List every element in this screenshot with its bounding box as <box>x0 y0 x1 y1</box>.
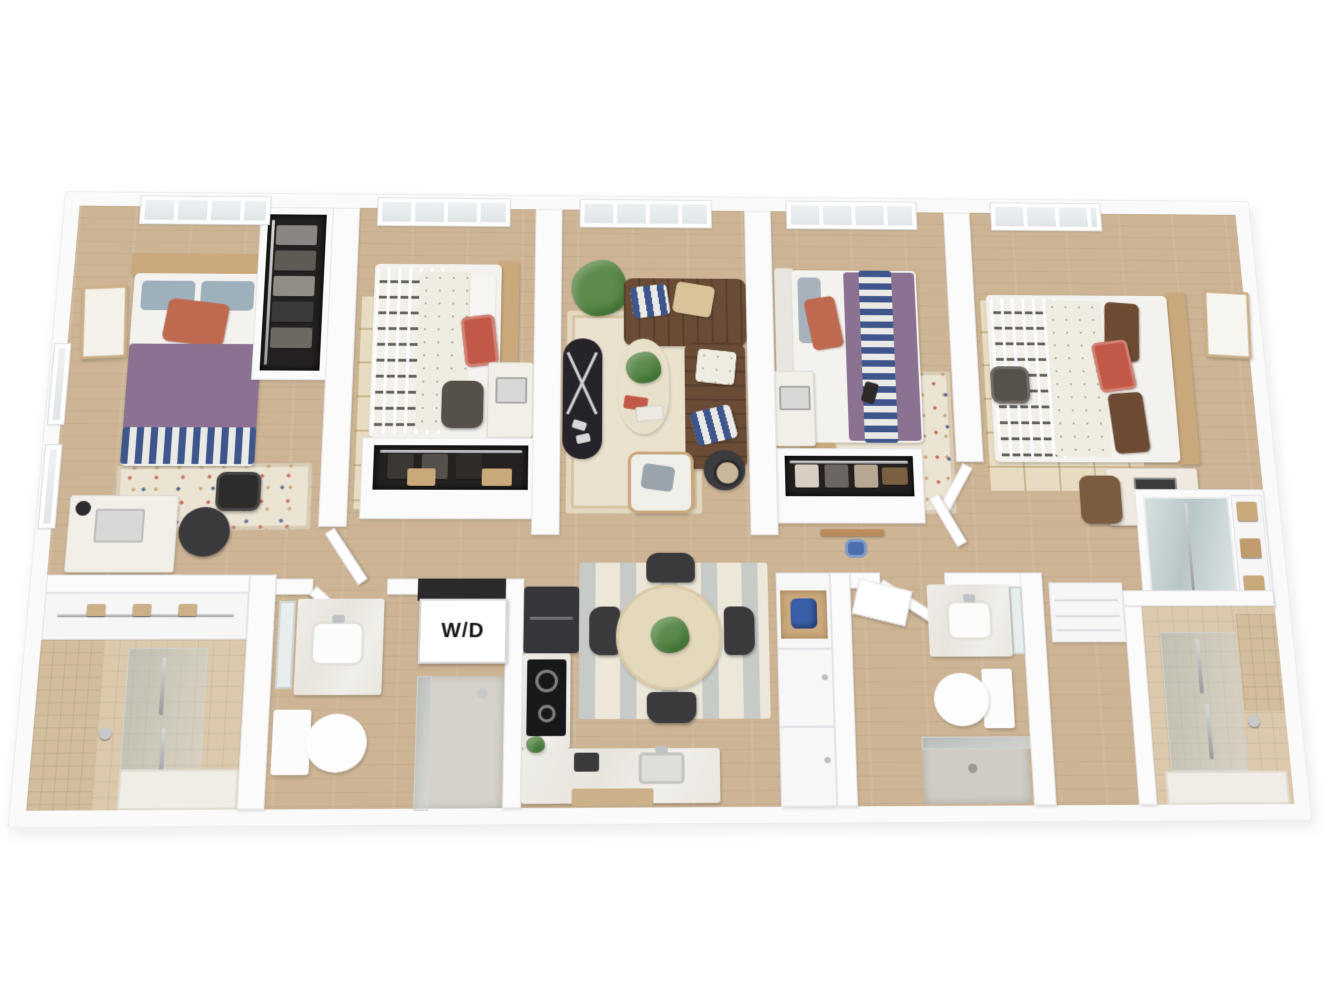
door-handle <box>1204 704 1213 760</box>
dining-chair <box>723 606 754 655</box>
cabinet-seam <box>780 726 834 728</box>
bedroom1-striped-blanket <box>120 427 256 464</box>
garment-rack-item <box>881 467 907 484</box>
wall <box>275 579 313 595</box>
window <box>579 199 711 228</box>
bedroom3-closet <box>784 456 914 497</box>
tile-wall <box>26 640 104 811</box>
hanging-clothes <box>269 327 312 348</box>
wall <box>1122 590 1274 606</box>
sofa-pillow-striped <box>629 283 670 318</box>
desk-chair <box>1078 476 1123 524</box>
storage-box <box>1235 502 1257 521</box>
page: W/D <box>0 0 1333 1000</box>
desk-chair <box>440 381 483 429</box>
stand-mixer <box>790 598 817 628</box>
hanger <box>132 604 152 616</box>
dining-chair <box>646 692 696 723</box>
sink-basin <box>945 600 993 640</box>
shelf-line <box>1055 615 1119 617</box>
window-pane <box>144 200 266 221</box>
dining-chair <box>646 553 695 583</box>
unit-interior: W/D <box>26 206 1294 811</box>
tub-ledge <box>116 769 238 810</box>
helmet-on-hook <box>844 539 867 558</box>
coat-rack <box>820 529 884 536</box>
window-pane <box>790 205 912 225</box>
tile-wall <box>1235 614 1284 711</box>
bedroom3-striped-runner <box>858 271 898 443</box>
magazine <box>635 405 664 423</box>
kitchen-sink <box>638 752 684 784</box>
cabinet-handle <box>821 674 827 680</box>
tv-media-unit <box>562 338 602 459</box>
shower-glass-panel <box>921 736 1030 749</box>
laptop <box>495 377 527 404</box>
wall-art-frame <box>80 285 128 360</box>
decor-item <box>575 433 590 444</box>
bedroom2-accent-pillow <box>460 314 499 367</box>
storage-box <box>481 468 511 485</box>
washer-dryer-unit[interactable]: W/D <box>417 599 507 664</box>
burner <box>535 670 558 693</box>
laptop <box>93 509 145 543</box>
open-shelf <box>779 590 827 638</box>
wall <box>531 209 562 535</box>
backpack <box>989 366 1030 403</box>
door-divider <box>1184 503 1195 597</box>
wall <box>45 575 250 593</box>
wall-art-frame <box>1203 290 1252 360</box>
window <box>785 201 917 230</box>
wood-bar-panel <box>571 788 653 805</box>
faucet <box>655 746 668 754</box>
tub-glass-doors <box>1159 632 1248 771</box>
door-handle <box>1195 639 1204 694</box>
door-handle <box>158 657 166 715</box>
floor-plan: W/D <box>7 191 1312 828</box>
faucet <box>332 615 345 623</box>
washer-dryer-niche <box>417 579 506 601</box>
bedroom2-closet <box>372 445 528 490</box>
linen-shelves <box>1048 582 1126 642</box>
shower-drain <box>967 764 977 773</box>
hanging-clothes <box>271 302 314 323</box>
window-pane <box>52 348 65 420</box>
laptop <box>778 386 810 411</box>
window <box>989 202 1102 231</box>
closet-rod <box>379 450 521 453</box>
window-pane <box>994 207 1097 227</box>
burner <box>537 705 555 723</box>
hanging-clothes <box>794 464 818 487</box>
tub-ledge <box>1164 771 1289 805</box>
hanging-clothes <box>455 454 482 479</box>
sofa-pillow-pattern <box>694 348 736 385</box>
shower-head <box>476 688 487 698</box>
window-pane <box>584 203 707 223</box>
linen-closet <box>41 593 249 640</box>
cabinet-seam <box>778 648 831 650</box>
potted-plant <box>571 260 628 317</box>
faucet <box>963 594 975 602</box>
coffee-maker <box>573 753 598 772</box>
decor-item <box>571 419 587 431</box>
window <box>138 195 271 225</box>
wall <box>386 579 419 595</box>
washer-dryer-label: W/D <box>441 619 485 642</box>
bedroom1-accent-pillow <box>161 298 230 348</box>
storage-box <box>406 468 435 486</box>
hanger <box>86 604 106 616</box>
bedroom1-closet <box>259 214 326 370</box>
mirrored-sliding-doors <box>1142 497 1238 604</box>
refrigerator <box>523 587 579 654</box>
table-plant <box>625 352 660 384</box>
shelf-line <box>1056 629 1120 631</box>
hanging-clothes <box>853 465 878 488</box>
table-plant <box>650 617 689 654</box>
bowl <box>713 459 741 486</box>
hanging-clothes <box>824 464 849 487</box>
backpack <box>214 472 261 511</box>
window-pane <box>43 449 57 524</box>
counter-plant <box>526 736 545 753</box>
window <box>376 197 510 227</box>
hanger <box>177 604 197 616</box>
window-pane <box>381 202 505 223</box>
cooktop <box>526 659 566 736</box>
fridge-handle <box>529 617 572 620</box>
hanging-clothes <box>275 225 317 245</box>
closet-rod <box>789 461 907 464</box>
hanging-clothes <box>274 250 316 270</box>
shelf-line <box>1054 599 1118 601</box>
hanging-clothes <box>272 276 314 296</box>
sink-basin <box>309 621 365 666</box>
bedroom1-purple-duvet <box>122 344 260 432</box>
armchair-pillow <box>640 463 675 492</box>
sofa-pillow-tan <box>671 281 715 318</box>
dining-chair <box>589 607 620 656</box>
storage-box <box>1239 538 1262 557</box>
cabinet-handle <box>824 757 830 763</box>
